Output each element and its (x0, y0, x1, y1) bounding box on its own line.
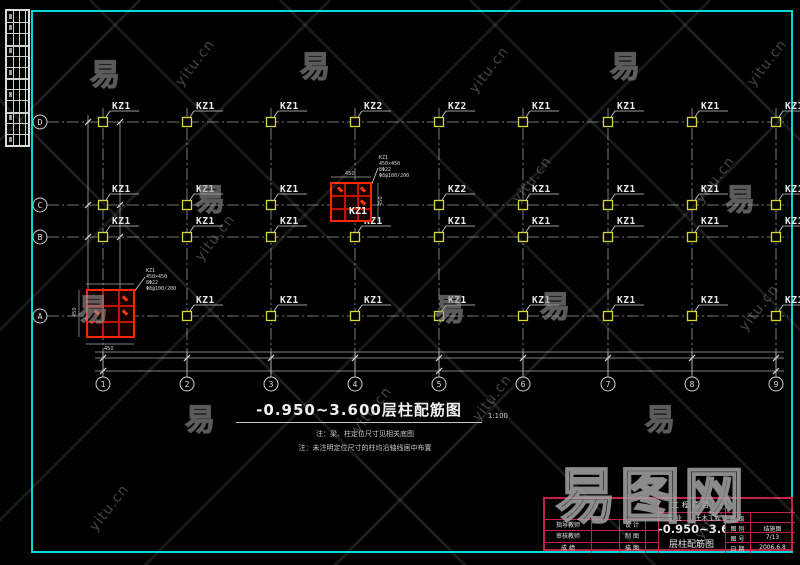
label-leader (190, 194, 194, 200)
column-label-B5: KZ1 (448, 216, 467, 227)
column-label-C9: KZ1 (785, 184, 800, 195)
column-square-D6 (519, 118, 528, 127)
column-label-D1: KZ1 (112, 101, 131, 112)
drawing-scale: 1:100 (488, 412, 508, 420)
column-detail-bottom-left (86, 289, 135, 338)
label-leader (106, 111, 110, 117)
column-label-B1: KZ1 (112, 216, 131, 227)
rebar-hatch (94, 309, 100, 315)
tb-left-label: 指导教师 (546, 520, 590, 529)
rebar-line (344, 184, 346, 220)
rebar-hatch (360, 199, 366, 205)
tb-mid-label: 制 图 (620, 531, 644, 540)
column-square-C1 (99, 201, 108, 210)
project-label: 工程项目 (660, 500, 724, 510)
column-annotation: KZ1450×4508Φ22Φ8@100/200 (379, 155, 409, 179)
column-square-A3 (267, 312, 276, 321)
rebar-hatch (360, 186, 366, 192)
column-label-B6: KZ1 (532, 216, 551, 227)
column-label-A8: KZ1 (701, 295, 720, 306)
label-leader (106, 226, 110, 232)
column-label-B9: KZ1 (785, 216, 800, 227)
column-square-D7 (604, 118, 613, 127)
tb-left-label: 成 绩 (546, 543, 590, 552)
label-leader (274, 226, 278, 232)
column-square-C8 (688, 201, 697, 210)
column-square-C2 (183, 201, 192, 210)
column-label-A2: KZ1 (196, 295, 215, 306)
title-block-line (591, 519, 592, 553)
column-square-A7 (604, 312, 613, 321)
column-label-B8: KZ1 (701, 216, 720, 227)
label-leader (695, 111, 699, 117)
rebar-line (88, 321, 133, 323)
label-leader (106, 194, 110, 200)
column-square-D3 (267, 118, 276, 127)
annotation-line: Φ8@100/200 (146, 286, 176, 292)
column-label-C5: KZ2 (448, 184, 467, 195)
column-square-D4 (351, 118, 360, 127)
label-leader (190, 111, 194, 117)
major-label: 专 业 (659, 512, 690, 522)
grid-bubble-row-label: C (38, 201, 43, 210)
column-square-A5 (435, 312, 444, 321)
rebar-hatch (122, 309, 128, 315)
label-leader (695, 194, 699, 200)
column-label-C7: KZ1 (617, 184, 636, 195)
label-leader (274, 305, 278, 311)
grid-bubble-col-label: 7 (606, 380, 611, 389)
column-square-B9 (772, 233, 781, 242)
column-square-C5 (435, 201, 444, 210)
annotation-leader (134, 277, 145, 292)
column-square-A2 (183, 312, 192, 321)
label-leader (358, 305, 362, 311)
grid-bubble-row-label: A (38, 312, 43, 321)
column-label-A4: KZ1 (364, 295, 383, 306)
label-leader (274, 111, 278, 117)
column-label-A3: KZ1 (280, 295, 299, 306)
grid-bubble-col-label: 1 (101, 380, 106, 389)
label-leader (190, 226, 194, 232)
column-label-B2: KZ1 (196, 216, 215, 227)
grid-bubble-col-label: 4 (353, 380, 358, 389)
column-label-D9: KZ1 (785, 101, 800, 112)
label-leader (358, 111, 362, 117)
column-square-C9 (772, 201, 781, 210)
annotation-line: Φ8@100/200 (379, 173, 409, 179)
label-leader (779, 194, 783, 200)
drawing-title-text: -0.950~3.600层柱配筋图 (256, 401, 462, 419)
label-leader (442, 194, 446, 200)
tb-left-label: 审核教师 (546, 531, 590, 540)
column-detail-label: KZ1 (349, 206, 367, 217)
column-label-D7: KZ1 (617, 101, 636, 112)
column-plan-drawing: 123456789DCBAKZ1KZ1KZ1KZ2KZ2KZ1KZ1KZ1KZ1… (0, 0, 800, 565)
column-square-C7 (604, 201, 613, 210)
grid-bubble-col-label: 2 (185, 380, 190, 389)
titleblock-drawing-name: 层柱配筋图 (658, 537, 725, 550)
drawing-note-1: 注：梁、柱定位尺寸见相关底图 (215, 429, 515, 439)
titleblock-elevation: -0.950~3.600 (658, 522, 725, 536)
label-leader (442, 226, 446, 232)
title-block: 工程项目 专 业 土木工程 -0.950~3.600 层柱配筋图 指导教师设 计… (543, 497, 793, 551)
column-label-C6: KZ1 (532, 184, 551, 195)
column-label-A9: KZ1 (785, 295, 800, 306)
column-square-B4 (351, 233, 360, 242)
label-leader (611, 194, 615, 200)
column-square-A6 (519, 312, 528, 321)
tb-right-label: 班 级 (726, 514, 749, 523)
detail-dim-top: 450 (345, 171, 355, 177)
label-leader (526, 194, 530, 200)
column-square-D2 (183, 118, 192, 127)
drawing-title: -0.950~3.600层柱配筋图 1:100 (236, 399, 482, 423)
annotation-leader (371, 168, 378, 186)
column-square-B6 (519, 233, 528, 242)
label-leader (611, 226, 615, 232)
column-label-C8: KZ1 (701, 184, 720, 195)
column-label-D3: KZ1 (280, 101, 299, 112)
label-leader (779, 111, 783, 117)
detail-dim-side: 450 (72, 307, 78, 317)
column-label-D2: KZ1 (196, 101, 215, 112)
column-square-A9 (772, 312, 781, 321)
column-square-B5 (435, 233, 444, 242)
column-label-A7: KZ1 (617, 295, 636, 306)
label-leader (190, 305, 194, 311)
label-leader (526, 305, 530, 311)
grid-bubble-row-label: D (38, 118, 43, 127)
column-label-D6: KZ1 (532, 101, 551, 112)
major-value: 土木工程 (691, 512, 725, 522)
detail-dim-bottom: 450 (104, 346, 114, 352)
grid-bubble-row-label: B (38, 233, 43, 242)
label-leader (779, 226, 783, 232)
tb-right-value: 结施图 (751, 524, 794, 533)
rebar-hatch (337, 186, 343, 192)
column-label-C2: KZ1 (196, 184, 215, 195)
grid-bubble-col-label: 8 (690, 380, 695, 389)
grid-bubble-col-label: 9 (774, 380, 779, 389)
column-label-D5: KZ2 (448, 101, 467, 112)
label-leader (695, 305, 699, 311)
column-square-B7 (604, 233, 613, 242)
label-leader (695, 226, 699, 232)
tb-right-value: 7/13 (751, 534, 794, 541)
column-square-B2 (183, 233, 192, 242)
column-square-C3 (267, 201, 276, 210)
column-label-C3: KZ1 (280, 184, 299, 195)
column-label-D8: KZ1 (701, 101, 720, 112)
column-square-B8 (688, 233, 697, 242)
column-square-A8 (688, 312, 697, 321)
label-leader (274, 194, 278, 200)
tb-right-label: 日 期 (726, 544, 749, 553)
rebar-line (102, 291, 104, 336)
column-square-D1 (99, 118, 108, 127)
label-leader (779, 305, 783, 311)
column-label-A5: KZ1 (448, 295, 467, 306)
tb-mid-label: 描 图 (620, 543, 644, 552)
column-square-C6 (519, 201, 528, 210)
column-square-D5 (435, 118, 444, 127)
column-square-A4 (351, 312, 360, 321)
label-leader (526, 226, 530, 232)
tb-right-label: 图 号 (726, 534, 749, 543)
column-square-D9 (772, 118, 781, 127)
label-leader (611, 305, 615, 311)
rebar-line (88, 305, 133, 307)
column-label-D4: KZ2 (364, 101, 383, 112)
column-square-B3 (267, 233, 276, 242)
column-label-B3: KZ1 (280, 216, 299, 227)
label-leader (358, 226, 362, 232)
rebar-hatch (122, 295, 128, 301)
drawing-note-2: 注：未注明定位尺寸的柱均沿轴线居中布置 (215, 443, 515, 453)
detail-dim-side: 450 (378, 196, 384, 206)
column-annotation: KZ1450×4508Φ22Φ8@100/200 (146, 268, 176, 292)
column-square-D8 (688, 118, 697, 127)
tb-mid-label: 设 计 (620, 520, 644, 529)
grid-bubble-col-label: 5 (437, 380, 442, 389)
rebar-line (332, 195, 370, 197)
grid-bubble-col-label: 3 (269, 380, 274, 389)
label-leader (526, 111, 530, 117)
tb-right-value: 2006.6.8 (751, 544, 794, 551)
column-label-B7: KZ1 (617, 216, 636, 227)
column-label-C1: KZ1 (112, 184, 131, 195)
column-label-A6: KZ1 (532, 295, 551, 306)
title-block-line (645, 519, 646, 553)
label-leader (442, 111, 446, 117)
label-leader (611, 111, 615, 117)
grid-bubble-col-label: 6 (521, 380, 526, 389)
column-square-B1 (99, 233, 108, 242)
label-leader (442, 305, 446, 311)
tb-right-label: 图 别 (726, 524, 749, 533)
rebar-line (118, 291, 120, 336)
cad-canvas: 123456789DCBAKZ1KZ1KZ1KZ2KZ2KZ1KZ1KZ1KZ1… (0, 0, 800, 565)
